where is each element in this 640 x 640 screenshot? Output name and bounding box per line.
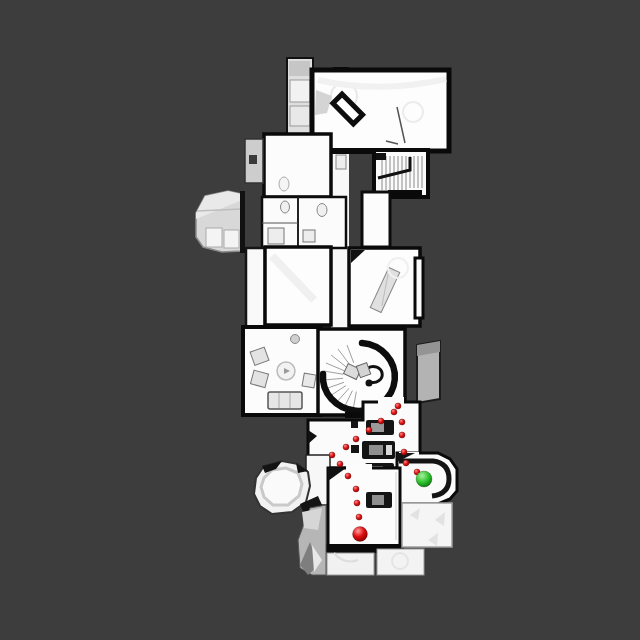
side-table	[302, 373, 316, 388]
bay-hexagonal-left	[196, 191, 245, 253]
path-dot-5	[329, 452, 335, 458]
hall-fixture-2	[362, 441, 395, 459]
bathroom-cluster	[262, 197, 346, 248]
corridor-left	[246, 248, 265, 330]
goal-marker	[416, 471, 432, 487]
path-dot-4	[337, 461, 343, 467]
path-dot-0	[356, 514, 362, 520]
stool	[291, 335, 300, 344]
room-mid-right	[349, 248, 423, 326]
closet-gray-strip	[245, 139, 263, 183]
path-dot-3	[345, 473, 351, 479]
stairwell-straight	[374, 150, 428, 197]
path-dot-1	[354, 500, 360, 506]
path-dot-8	[366, 427, 372, 433]
path-dot-6	[343, 444, 349, 450]
path-dot-15	[403, 460, 409, 466]
room-mid-left	[265, 247, 331, 325]
start-room-fixture	[366, 492, 392, 508]
path-dot-14	[401, 449, 407, 455]
room-lower-right	[402, 503, 452, 547]
living-room	[243, 327, 321, 415]
path-dot-11	[395, 403, 401, 409]
sofa	[268, 392, 302, 409]
start-marker	[353, 527, 368, 542]
path-dot-7	[353, 436, 359, 442]
chimney-gray-block	[417, 341, 440, 403]
floor-plan-svg	[0, 0, 640, 640]
path-dot-10	[391, 409, 397, 415]
top-annex	[287, 58, 313, 134]
path-dot-2	[353, 486, 359, 492]
screenshot-root	[0, 0, 640, 640]
room-narrow-mid	[362, 192, 390, 247]
path-dot-12	[399, 419, 405, 425]
path-dot-13	[399, 432, 405, 438]
path-dot-9	[378, 418, 384, 424]
